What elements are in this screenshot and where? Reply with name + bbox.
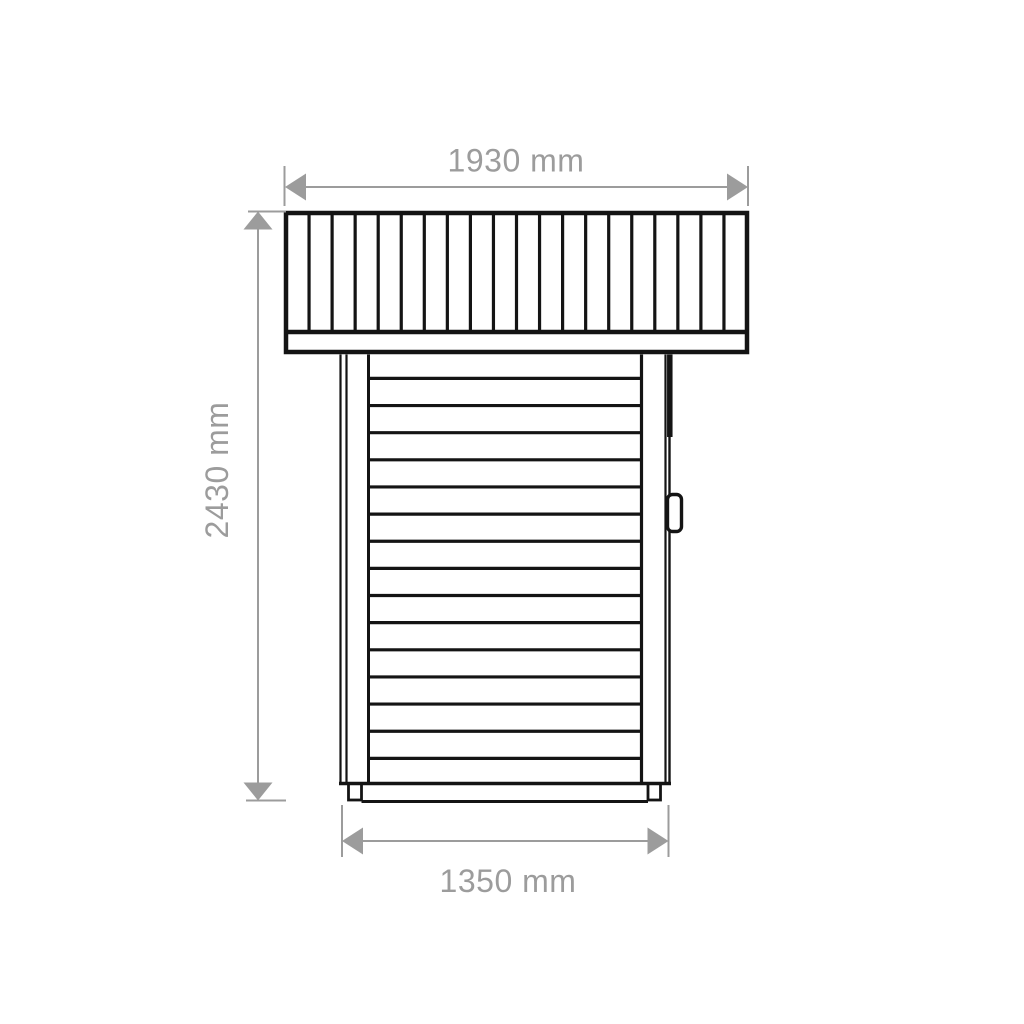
arrowhead-down <box>244 783 273 801</box>
skid-foot <box>648 784 661 801</box>
height-label: 2430 mm <box>199 402 235 539</box>
arrowhead-right <box>727 174 748 201</box>
door-handle-pull <box>668 495 682 532</box>
skid-foot <box>349 784 362 801</box>
wall-panel <box>339 355 671 784</box>
arrowhead-left <box>285 174 306 201</box>
dimension-roof-width: 1930 mm <box>285 143 749 207</box>
dimension-base-width: 1350 mm <box>342 805 669 899</box>
roof-panel <box>286 213 747 352</box>
dimension-height: 2430 mm <box>199 212 286 801</box>
arrowhead-up <box>244 212 273 230</box>
shed-technical-drawing: 1930 mm 2430 mm 1350 mm <box>0 0 1024 1024</box>
drawing-page: 1930 mm 2430 mm 1350 mm <box>0 0 1024 1024</box>
roof-width-label: 1930 mm <box>448 143 585 179</box>
arrowhead-left <box>342 828 363 855</box>
base-skids <box>349 784 661 802</box>
door-handle <box>668 495 682 532</box>
arrowhead-right <box>648 828 669 855</box>
base-width-label: 1350 mm <box>440 863 577 899</box>
